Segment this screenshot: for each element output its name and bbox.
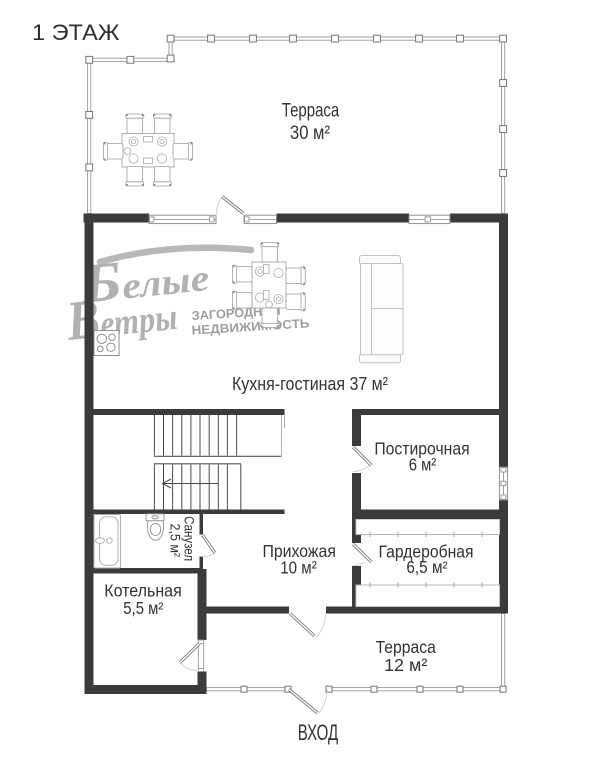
svg-text:Терраса: Терраса	[376, 637, 436, 657]
svg-text:5,5 м²: 5,5 м²	[123, 598, 163, 618]
svg-text:6,5 м²: 6,5 м²	[406, 558, 447, 577]
svg-text:Кухня-гостиная 37 м²: Кухня-гостиная 37 м²	[232, 373, 388, 394]
svg-text:ВХОД: ВХОД	[298, 720, 339, 745]
svg-text:6 м²: 6 м²	[409, 455, 437, 475]
svg-text:10 м²: 10 м²	[280, 557, 317, 577]
svg-text:30 м²: 30 м²	[290, 123, 330, 144]
svg-text:Терраса: Терраса	[282, 101, 340, 122]
svg-text:2,5 м²: 2,5 м²	[167, 524, 183, 558]
svg-text:1 ЭТАЖ: 1 ЭТАЖ	[32, 20, 120, 45]
svg-text:12 м²: 12 м²	[384, 655, 427, 675]
